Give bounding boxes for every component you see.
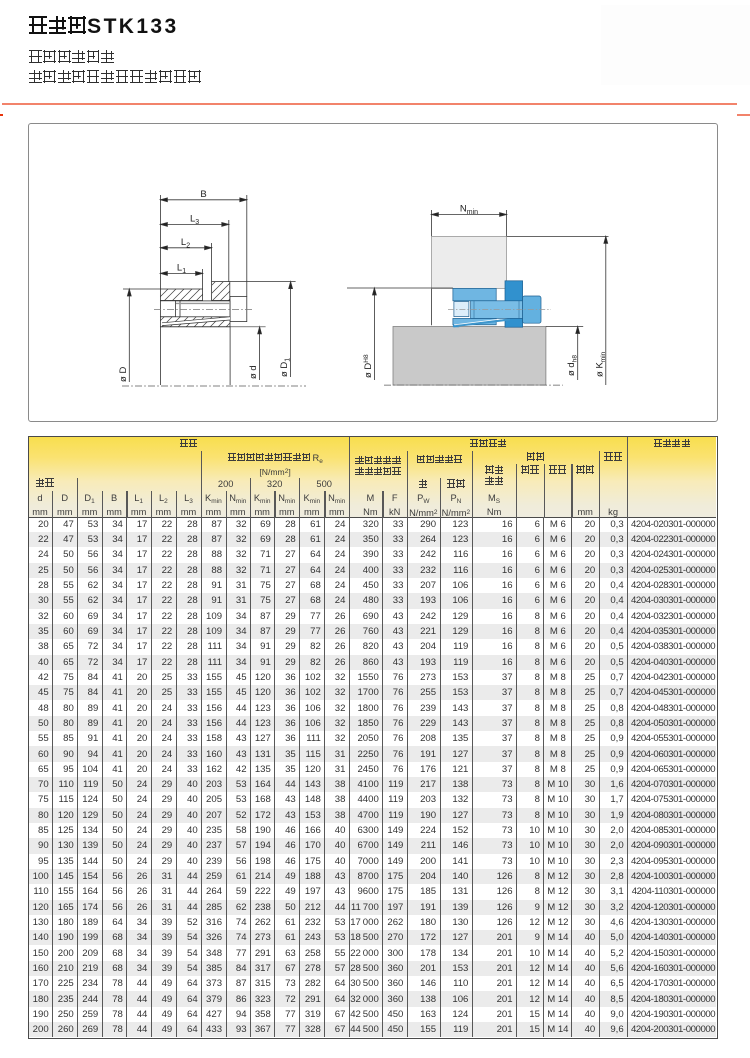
svg-text:L2: L2: [181, 237, 190, 250]
svg-text:L3: L3: [190, 213, 199, 226]
svg-text:ø D: ø D: [118, 366, 129, 381]
svg-text:Nmin: Nmin: [460, 203, 478, 216]
svg-text:L1: L1: [177, 262, 186, 275]
svg-text:ø DH8: ø DH8: [363, 354, 374, 378]
svg-text:ø Kmin: ø Kmin: [594, 351, 607, 377]
svg-text:B: B: [200, 189, 206, 200]
svg-text:ø d: ø d: [248, 365, 259, 379]
svg-text:ø D1: ø D1: [279, 357, 292, 376]
svg-text:ø dh8: ø dh8: [566, 354, 579, 375]
